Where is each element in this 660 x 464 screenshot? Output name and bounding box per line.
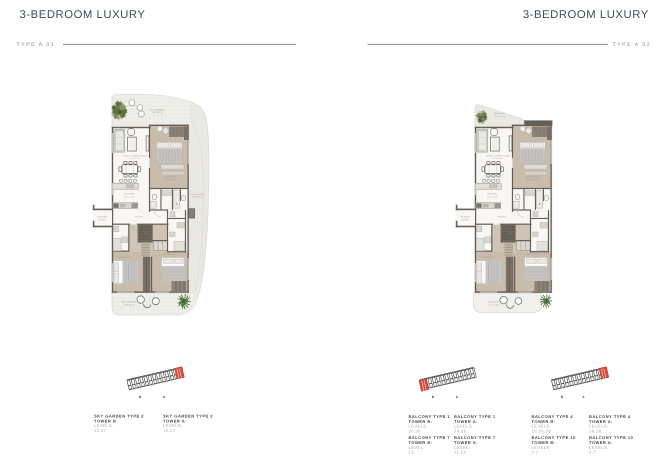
svg-text:10,20,29: 10,20,29 bbox=[532, 429, 552, 433]
svg-text:LEVELS:: LEVELS: bbox=[94, 424, 114, 428]
svg-text:BEDROOM 3: BEDROOM 3 bbox=[526, 253, 539, 255]
svg-text:W.I.C: W.I.C bbox=[144, 232, 149, 234]
svg-text:2,7: 2,7 bbox=[532, 450, 539, 454]
svg-text:B: B bbox=[561, 395, 563, 399]
svg-text:A: A bbox=[582, 395, 584, 399]
svg-text:11,12: 11,12 bbox=[454, 450, 466, 454]
svg-text:3.3 X 2.4 M: 3.3 X 2.4 M bbox=[124, 196, 135, 198]
svg-text:LIVING / DINING ROOM: LIVING / DINING ROOM bbox=[122, 155, 147, 157]
svg-text:BALCONY TYPE 4: BALCONY TYPE 4 bbox=[532, 415, 574, 419]
svg-text:TERRACE: TERRACE bbox=[124, 304, 135, 306]
svg-text:BEDROOM 3: BEDROOM 3 bbox=[163, 253, 176, 255]
svg-text:BEDROOM 2: BEDROOM 2 bbox=[118, 256, 131, 258]
svg-text:KITCHEN: KITCHEN bbox=[487, 193, 497, 195]
svg-text:TOWER A:: TOWER A: bbox=[589, 441, 613, 445]
svg-text:BEDROOM 2: BEDROOM 2 bbox=[481, 256, 494, 258]
svg-text:FOYER: FOYER bbox=[498, 216, 506, 218]
svg-text:ROOM: ROOM bbox=[99, 219, 106, 221]
svg-text:TOWER A:: TOWER A: bbox=[589, 420, 613, 424]
svg-text:4.0 X 3.6 M: 4.0 X 3.6 M bbox=[165, 178, 176, 180]
svg-text:TYPE A 01: TYPE A 01 bbox=[17, 42, 56, 48]
svg-text:FOYER: FOYER bbox=[135, 216, 143, 218]
svg-text:TOWER B:: TOWER B: bbox=[94, 419, 118, 423]
svg-text:BEDROOM 1: BEDROOM 1 bbox=[163, 176, 176, 178]
svg-text:LEVELS:: LEVELS: bbox=[163, 424, 183, 428]
svg-text:BEDROOM 1: BEDROOM 1 bbox=[526, 176, 539, 178]
svg-text:SKY GARDEN TYPE 2: SKY GARDEN TYPE 2 bbox=[94, 414, 144, 418]
svg-text:LEVELS:: LEVELS: bbox=[589, 424, 609, 428]
svg-text:B: B bbox=[139, 395, 141, 399]
svg-text:POWDER: POWDER bbox=[460, 216, 470, 218]
svg-text:3.5 X 1.6 M: 3.5 X 1.6 M bbox=[495, 115, 506, 117]
svg-text:BALCONY: BALCONY bbox=[489, 301, 500, 303]
svg-text:3.3 X 2.4 M: 3.3 X 2.4 M bbox=[487, 196, 498, 198]
svg-text:LEVELS:: LEVELS: bbox=[409, 424, 429, 428]
svg-text:TYPE A 02: TYPE A 02 bbox=[613, 42, 652, 48]
svg-text:3-BEDROOM LUXURY: 3-BEDROOM LUXURY bbox=[523, 9, 649, 21]
svg-text:BALCONY TYPE 7: BALCONY TYPE 7 bbox=[409, 436, 451, 440]
svg-text:12: 12 bbox=[409, 450, 414, 454]
svg-text:TOWER A:: TOWER A: bbox=[163, 419, 187, 423]
svg-text:BALCONY TYPE 10: BALCONY TYPE 10 bbox=[532, 436, 576, 440]
svg-text:TOWER B:: TOWER B: bbox=[532, 441, 556, 445]
svg-text:TERRACE: TERRACE bbox=[192, 196, 202, 198]
svg-text:BALCONY TYPE 1: BALCONY TYPE 1 bbox=[454, 415, 496, 419]
svg-text:TOWER A:: TOWER A: bbox=[454, 441, 478, 445]
svg-text:5.0 X 4.1 M: 5.0 X 4.1 M bbox=[492, 157, 503, 159]
svg-text:LIVING / DINING ROOM: LIVING / DINING ROOM bbox=[485, 155, 510, 157]
svg-text:TOWER A:: TOWER A: bbox=[454, 420, 478, 424]
svg-text:LEVEL:: LEVEL: bbox=[409, 446, 426, 450]
svg-text:BALCONY TYPE 10: BALCONY TYPE 10 bbox=[589, 436, 633, 440]
svg-text:POWDER: POWDER bbox=[97, 216, 107, 218]
svg-text:10,27: 10,27 bbox=[94, 429, 107, 433]
svg-text:SKY GARDEN TYPE 2: SKY GARDEN TYPE 2 bbox=[163, 414, 213, 418]
svg-text:9.0 X 1.8 M: 9.0 X 1.8 M bbox=[489, 304, 500, 306]
svg-text:5.0 X 4.1 M: 5.0 X 4.1 M bbox=[129, 157, 140, 159]
svg-text:BALCONY TYPE 1: BALCONY TYPE 1 bbox=[409, 415, 451, 419]
svg-text:LEVELS:: LEVELS: bbox=[589, 446, 609, 450]
svg-text:TOWER B:: TOWER B: bbox=[409, 441, 433, 445]
svg-text:LEVELS:: LEVELS: bbox=[454, 424, 474, 428]
svg-text:10,27: 10,27 bbox=[163, 429, 176, 433]
svg-text:A: A bbox=[456, 395, 458, 399]
svg-text:20,36: 20,36 bbox=[409, 429, 422, 433]
svg-text:BALCONY TYPE 7: BALCONY TYPE 7 bbox=[454, 436, 496, 440]
svg-text:KITCHEN: KITCHEN bbox=[124, 193, 134, 195]
svg-text:BALCONY TYPE 4: BALCONY TYPE 4 bbox=[589, 415, 631, 419]
svg-text:SKY GARDEN: SKY GARDEN bbox=[191, 193, 205, 195]
svg-text:B: B bbox=[432, 395, 434, 399]
svg-text:LEVELS:: LEVELS: bbox=[532, 446, 552, 450]
svg-text:TOWER B:: TOWER B: bbox=[409, 420, 433, 424]
svg-text:TERRACE: TERRACE bbox=[152, 111, 163, 113]
svg-text:24,35: 24,35 bbox=[454, 429, 467, 433]
svg-text:19,28: 19,28 bbox=[589, 429, 602, 433]
svg-text:ROOM: ROOM bbox=[462, 219, 469, 221]
svg-text:BALCONY: BALCONY bbox=[495, 112, 506, 114]
svg-text:W.I.C: W.I.C bbox=[507, 232, 512, 234]
svg-text:LEVELS:: LEVELS: bbox=[532, 424, 552, 428]
svg-text:3-BEDROOM LUXURY: 3-BEDROOM LUXURY bbox=[20, 9, 146, 21]
svg-text:LEVEL:: LEVEL: bbox=[454, 446, 471, 450]
svg-text:SKY GARDEN: SKY GARDEN bbox=[122, 301, 137, 303]
svg-text:TOWER B:: TOWER B: bbox=[532, 420, 556, 424]
svg-text:A: A bbox=[163, 395, 165, 399]
svg-text:4.0 X 3.6 M: 4.0 X 3.6 M bbox=[528, 178, 539, 180]
svg-text:SKY GARDEN: SKY GARDEN bbox=[150, 109, 165, 111]
svg-text:2,7: 2,7 bbox=[589, 450, 596, 454]
